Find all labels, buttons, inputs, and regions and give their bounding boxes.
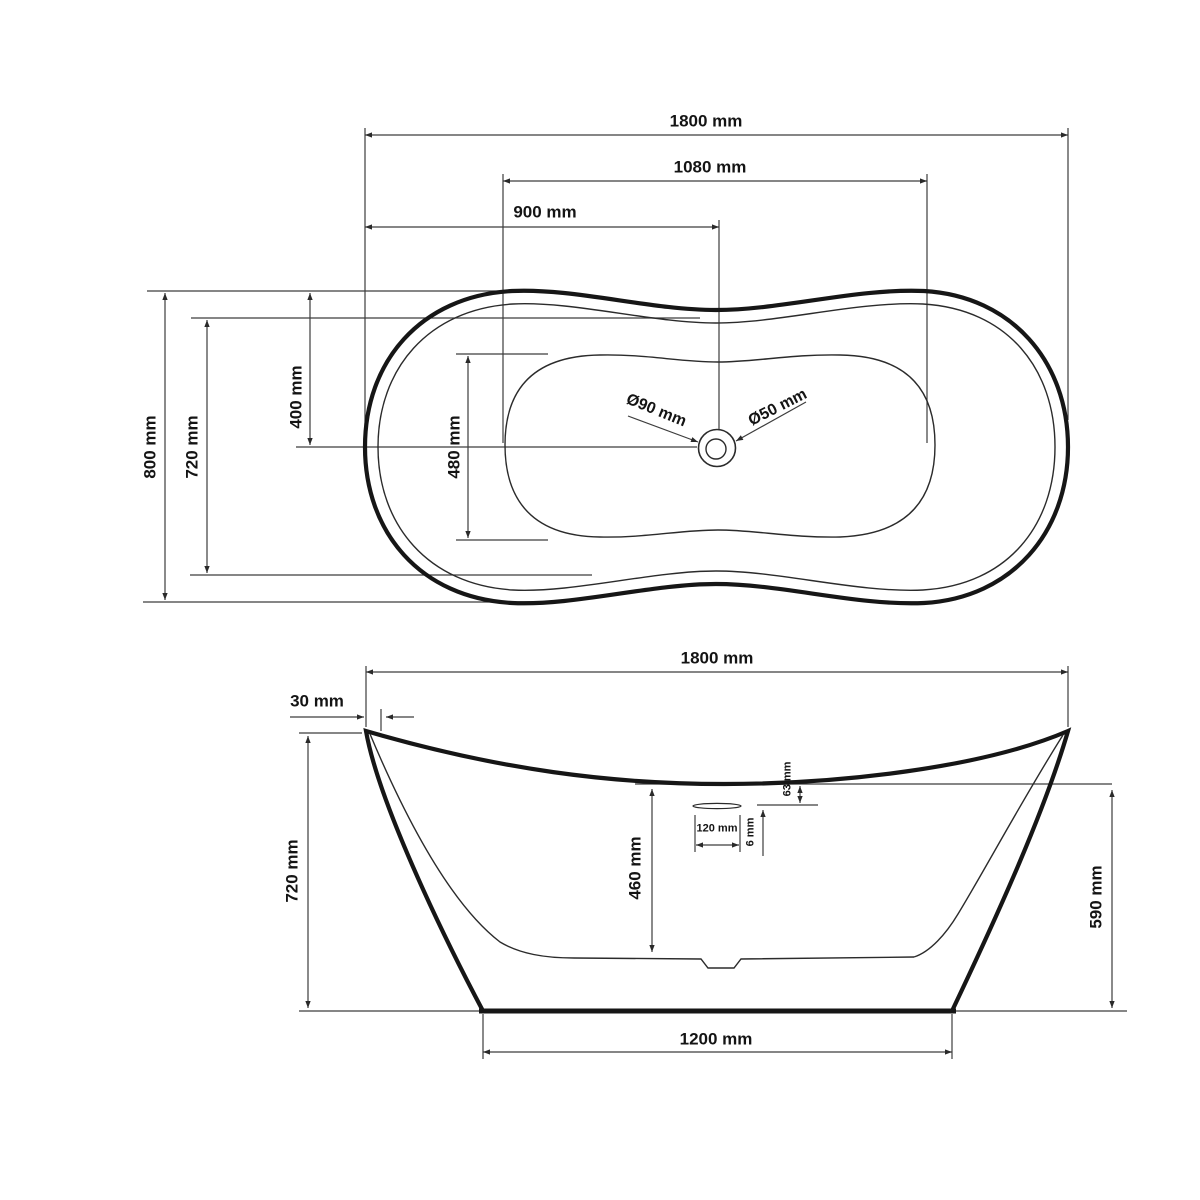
bathtub-dimension-drawing: 1800 mm 1080 mm 900 mm 800 mm 720 mm 400…: [0, 0, 1200, 1200]
dim-label-overflow-slot-height: 6 mm: [746, 818, 757, 847]
front-view: [290, 666, 1127, 1059]
dim-label-overflow-drop: 63 mm: [783, 762, 794, 797]
dim-label-inner-depth: 460 mm: [627, 836, 644, 899]
dim-label-height: 720 mm: [284, 839, 301, 902]
dim-label-side-height: 590 mm: [1088, 865, 1105, 928]
overflow-slot: [693, 803, 741, 808]
inner-floor: [574, 957, 914, 968]
dim-label-basin-length: 1080 mm: [674, 159, 747, 176]
drawing-linework: [0, 0, 1200, 1200]
dim-label-width: 800 mm: [142, 415, 159, 478]
tub-front-silhouette: [366, 731, 1068, 1011]
dim-label-edge-to-center: 400 mm: [288, 365, 305, 428]
dim-label-overflow-slot-width: 120 mm: [697, 824, 738, 835]
dim-label-inner-width: 720 mm: [184, 415, 201, 478]
dim-label-front-length: 1800 mm: [681, 650, 754, 667]
top-view: [143, 128, 1068, 603]
dim-label-top-length: 1800 mm: [670, 113, 743, 130]
dim-label-drain-from-left: 900 mm: [513, 204, 576, 221]
dim-label-basin-width: 480 mm: [446, 415, 463, 478]
dim-label-base-length: 1200 mm: [680, 1031, 753, 1048]
drain-outer-circle: [699, 430, 736, 467]
drain-inner-circle: [706, 439, 726, 459]
dim-label-rim-thickness: 30 mm: [290, 693, 344, 710]
inner-wall-left: [370, 734, 574, 958]
basin-outline: [505, 355, 935, 537]
